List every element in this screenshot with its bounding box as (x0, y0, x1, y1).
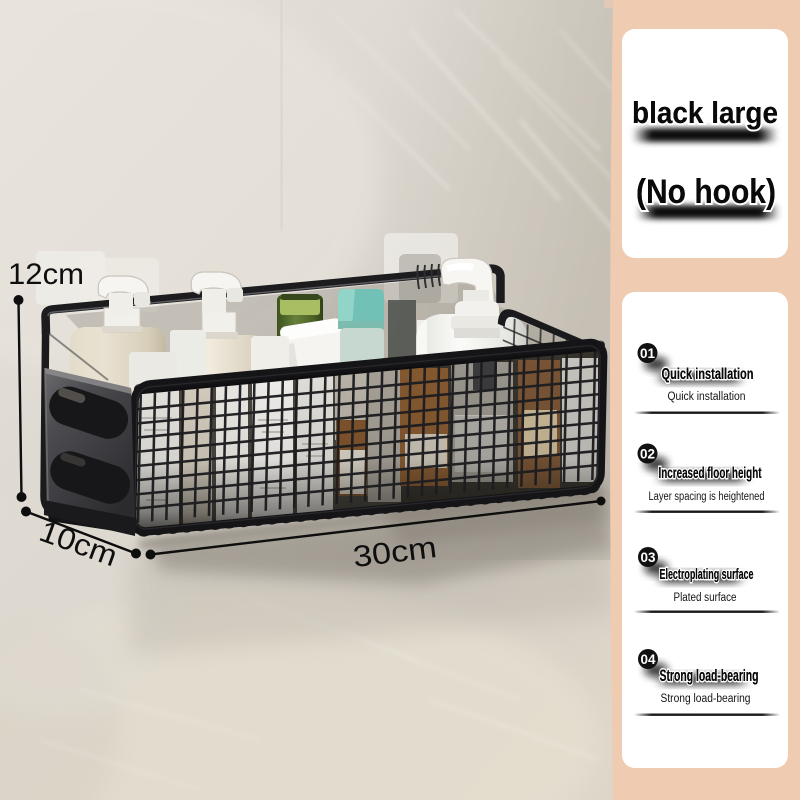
svg-text:Increased floor height: Increased floor height (659, 465, 762, 482)
svg-text:04: 04 (640, 652, 656, 667)
svg-text:Quick installation: Quick installation (662, 366, 754, 383)
svg-text:Plated surface: Plated surface (674, 592, 737, 604)
svg-text:Layer spacing is heightened: Layer spacing is heightened (649, 491, 765, 503)
svg-text:Strong load-bearing: Strong load-bearing (660, 666, 759, 685)
svg-text:01: 01 (640, 346, 656, 361)
svg-text:12cm: 12cm (8, 258, 84, 291)
svg-text:black large: black large (632, 95, 778, 130)
svg-text:(No hook): (No hook) (636, 173, 776, 211)
svg-text:03: 03 (640, 550, 656, 565)
svg-text:02: 02 (640, 447, 655, 462)
svg-text:Electroplating surface: Electroplating surface (660, 566, 754, 583)
svg-text:Strong load-bearing: Strong load-bearing (661, 693, 751, 705)
svg-text:Quick installation: Quick installation (668, 391, 746, 403)
